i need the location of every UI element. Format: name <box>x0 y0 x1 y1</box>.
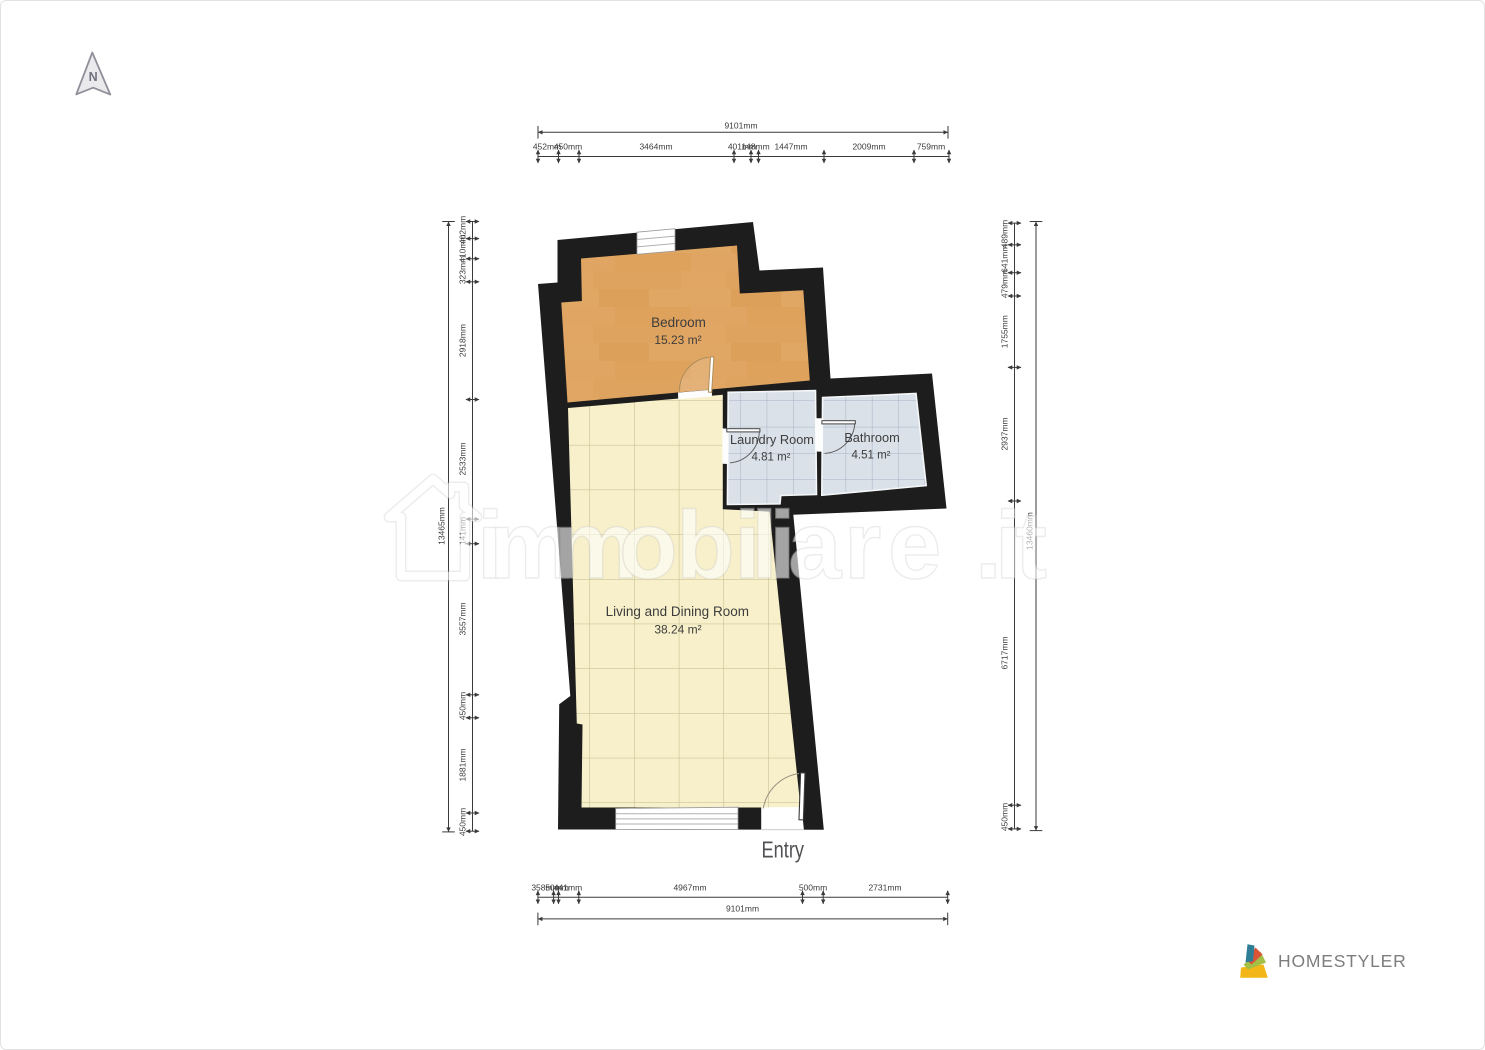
svg-text:4967mm: 4967mm <box>673 882 706 892</box>
svg-text:3557mm: 3557mm <box>458 602 468 635</box>
svg-text:9101mm: 9101mm <box>724 121 757 131</box>
svg-text:1755mm: 1755mm <box>1000 315 1010 348</box>
svg-text:1881mm: 1881mm <box>458 748 468 781</box>
svg-text:2918mm: 2918mm <box>458 324 468 357</box>
svg-text:500mm: 500mm <box>799 882 827 892</box>
svg-text:1447mm: 1447mm <box>774 142 807 152</box>
svg-text:450mm: 450mm <box>554 142 582 152</box>
svg-text:759mm: 759mm <box>917 142 945 152</box>
svg-text:13465mm: 13465mm <box>437 507 447 545</box>
svg-text:148mm: 148mm <box>741 142 769 152</box>
svg-text:6717mm: 6717mm <box>1000 636 1010 669</box>
svg-text:Entry: Entry <box>762 837 805 863</box>
svg-text:2731mm: 2731mm <box>868 882 901 892</box>
svg-text:38.24 m²: 38.24 m² <box>654 623 701 637</box>
svg-text:450mm: 450mm <box>458 808 468 836</box>
svg-text:450mm: 450mm <box>458 692 468 720</box>
svg-text:450mm: 450mm <box>1000 803 1010 831</box>
svg-text:441mm: 441mm <box>554 882 582 892</box>
svg-text:641mm: 641mm <box>1000 245 1010 273</box>
svg-text:Living and Dining Room: Living and Dining Room <box>606 604 749 619</box>
svg-text:2533mm: 2533mm <box>458 442 468 475</box>
svg-text:immobiliare.it: immobiliare.it <box>477 492 1047 599</box>
svg-text:4.81 m²: 4.81 m² <box>752 452 791 464</box>
svg-text:N: N <box>89 70 98 84</box>
svg-text:4.51 m²: 4.51 m² <box>852 450 891 462</box>
svg-text:323mm: 323mm <box>458 256 468 284</box>
svg-text:3464mm: 3464mm <box>639 142 672 152</box>
svg-text:HOMESTYLER: HOMESTYLER <box>1278 951 1407 971</box>
svg-text:489mm: 489mm <box>1000 220 1010 248</box>
svg-text:479mm: 479mm <box>1000 270 1010 298</box>
svg-text:2937mm: 2937mm <box>1000 417 1010 450</box>
svg-text:Bathroom: Bathroom <box>844 430 899 445</box>
svg-text:Laundry Room: Laundry Room <box>730 432 814 447</box>
svg-text:15.23 m²: 15.23 m² <box>654 333 701 347</box>
svg-text:2009mm: 2009mm <box>852 142 885 152</box>
svg-text:Bedroom: Bedroom <box>651 315 706 330</box>
svg-text:9101mm: 9101mm <box>726 904 759 914</box>
